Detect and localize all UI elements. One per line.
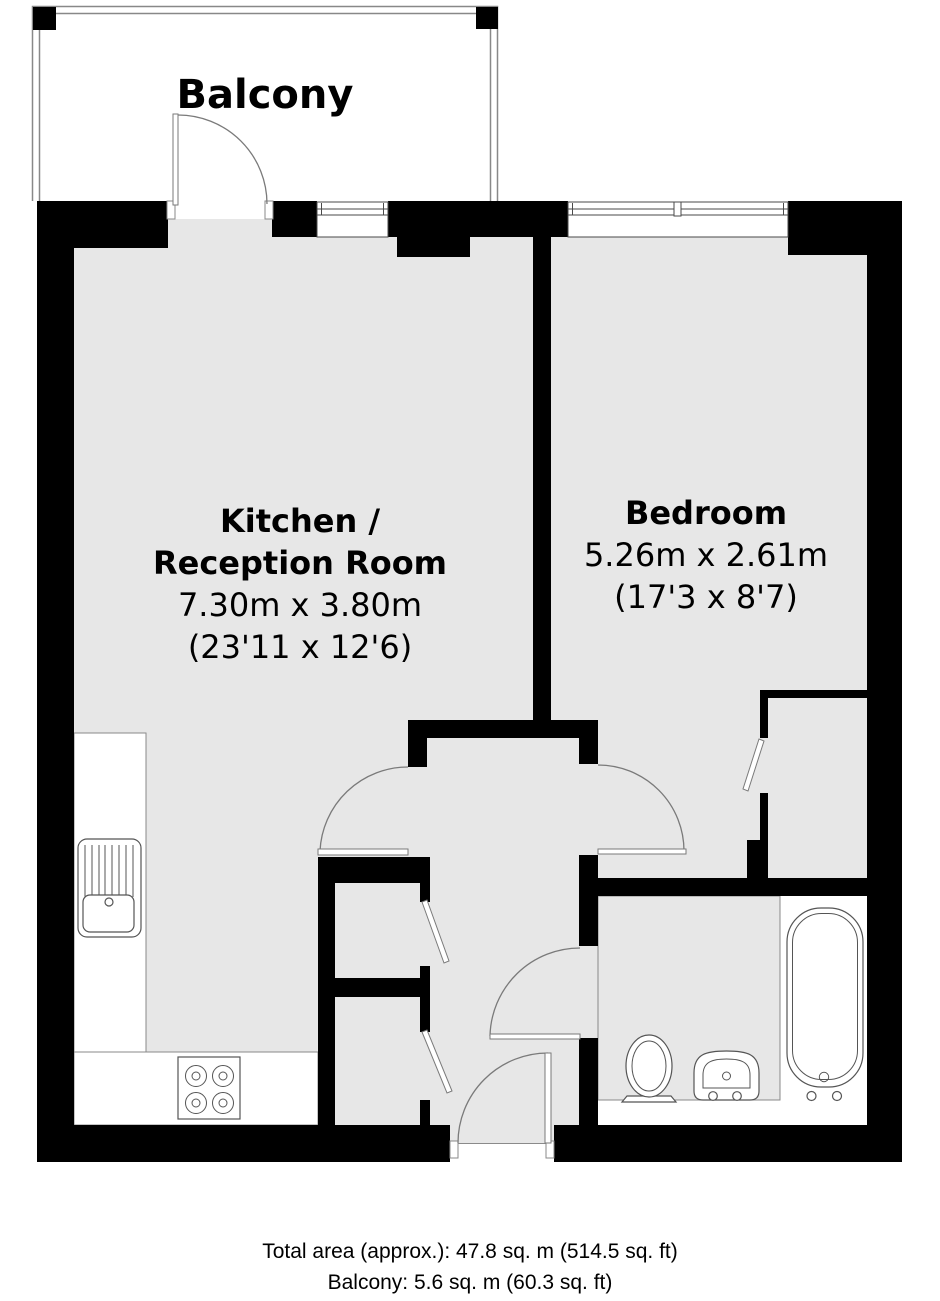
bedroom-name: Bedroom [530, 492, 882, 534]
total-area-text: Total area (approx.): 47.8 sq. m (514.5 … [0, 1236, 940, 1267]
area-summary: Total area (approx.): 47.8 sq. m (514.5 … [0, 1236, 940, 1298]
balcony-label: Balcony [130, 72, 400, 118]
balcony-door [173, 114, 267, 205]
bedroom-window [568, 202, 788, 237]
floor-plan: Balcony Kitchen / Reception Room 7.30m x… [0, 0, 940, 1301]
kitchen-name-line2: Reception Room [110, 542, 490, 584]
entry-door-jamb-left [450, 1141, 458, 1158]
balcony-corner-post-left [33, 7, 56, 30]
bedroom-dims-imperial: (17'3 x 8'7) [530, 576, 882, 618]
bathtub [787, 908, 863, 1101]
kitchen-dims-metric: 7.30m x 3.80m [110, 584, 490, 626]
wash-basin [694, 1051, 759, 1100]
kitchen-name-line1: Kitchen / [110, 500, 490, 542]
bedroom-dims-metric: 5.26m x 2.61m [530, 534, 882, 576]
kitchen-sink [78, 839, 141, 937]
entry-threshold-floor [450, 1125, 554, 1143]
kitchen-dims-imperial: (23'11 x 12'6) [110, 626, 490, 668]
kitchen-label: Kitchen / Reception Room 7.30m x 3.80m (… [110, 500, 490, 668]
hob [178, 1057, 240, 1119]
bedroom-label: Bedroom 5.26m x 2.61m (17'3 x 8'7) [530, 492, 882, 618]
balcony-door-jamb-right [265, 201, 273, 219]
kitchen-window [317, 202, 388, 237]
entry-door-jamb-right [546, 1141, 554, 1158]
balcony-area-text: Balcony: 5.6 sq. m (60.3 sq. ft) [0, 1267, 940, 1298]
balcony-corner-post-right [476, 7, 498, 29]
